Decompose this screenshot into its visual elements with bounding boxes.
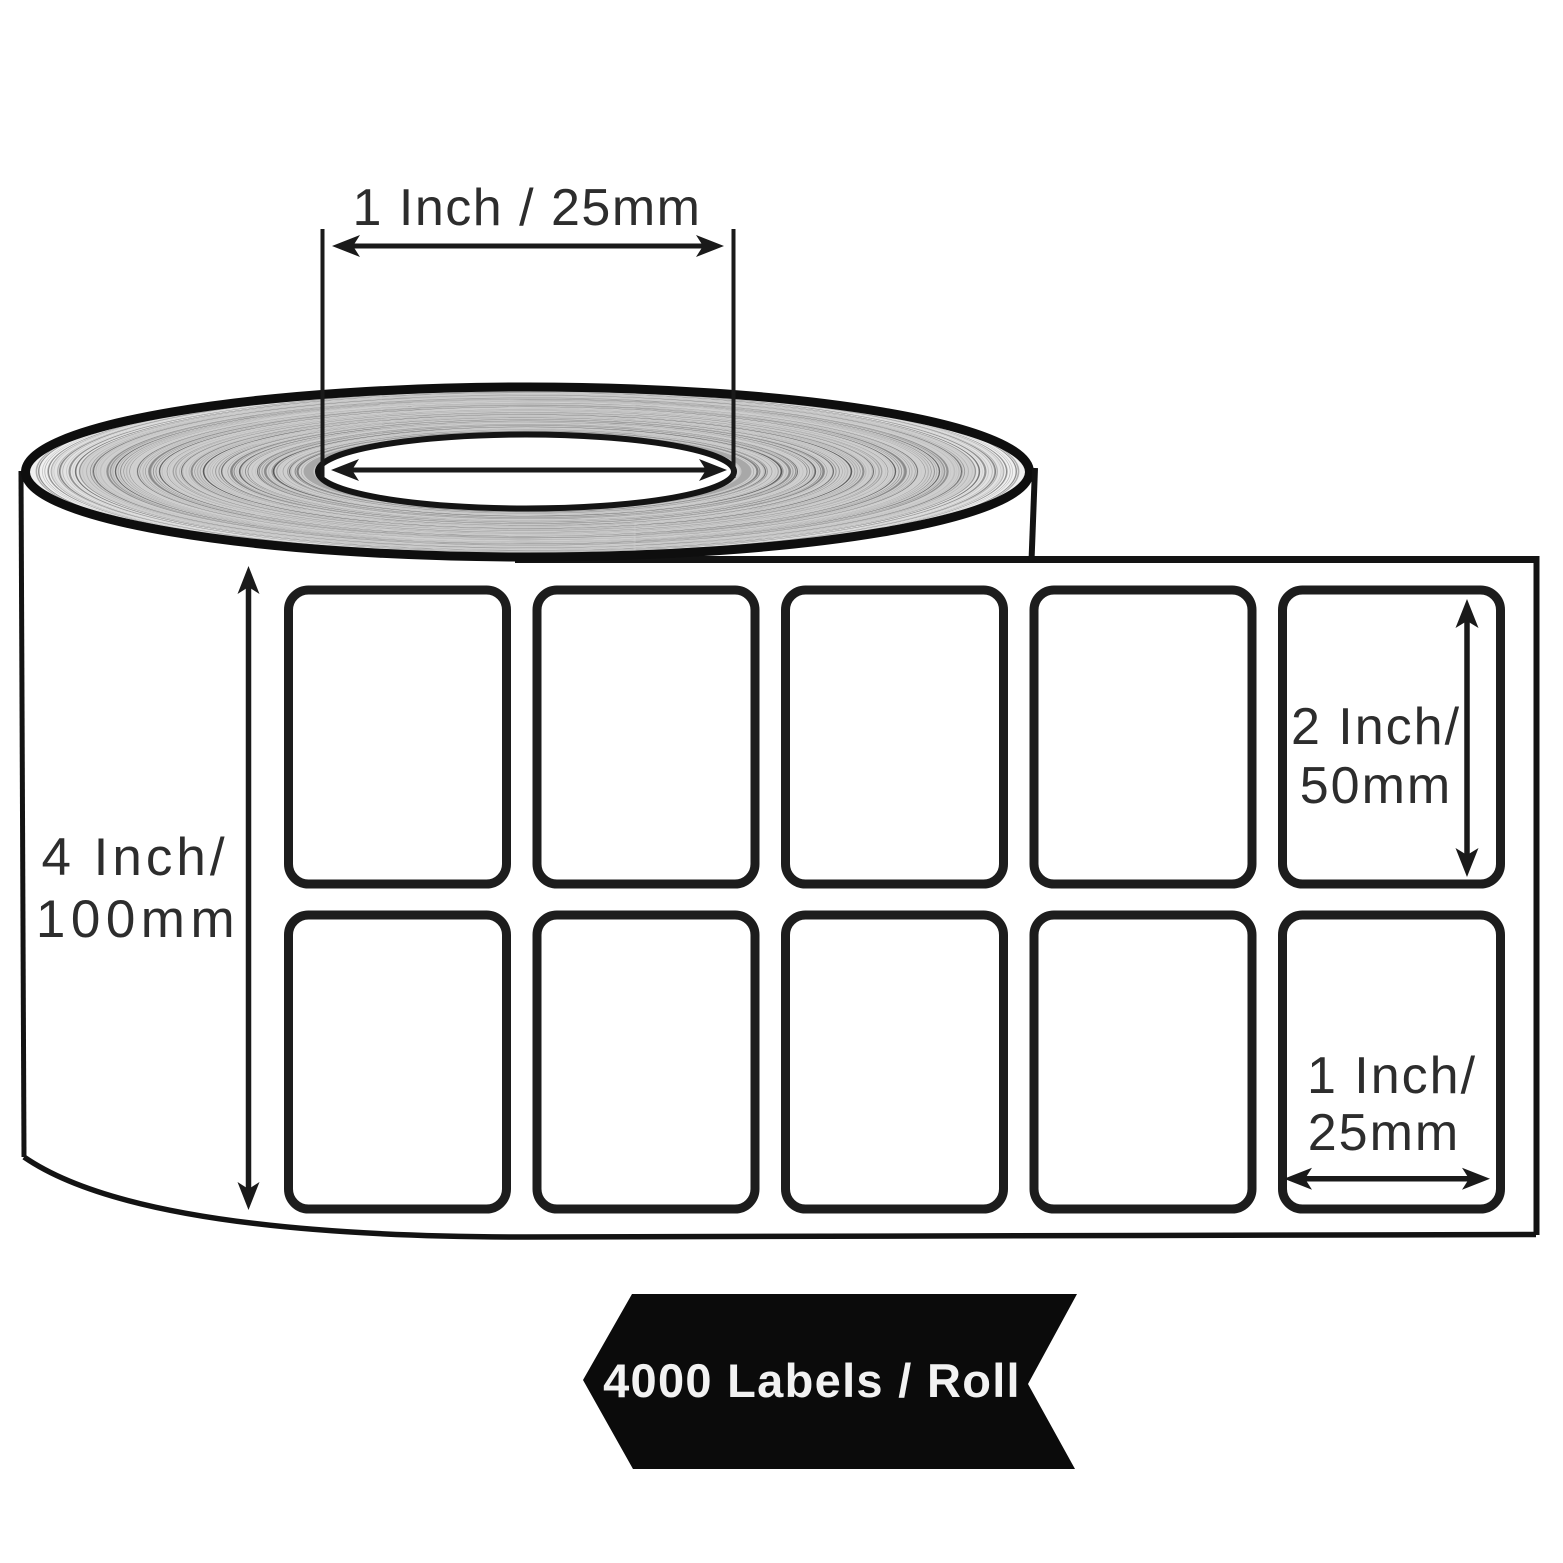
- svg-text:1 Inch / 25mm: 1 Inch / 25mm: [353, 179, 702, 237]
- svg-text:1 Inch/: 1 Inch/: [1307, 1047, 1477, 1105]
- svg-text:50mm: 50mm: [1300, 757, 1452, 815]
- svg-text:25mm: 25mm: [1308, 1104, 1460, 1162]
- svg-text:2 Inch/: 2 Inch/: [1291, 698, 1461, 756]
- svg-text:100mm: 100mm: [36, 890, 240, 949]
- svg-text:4000 Labels / Roll: 4000 Labels / Roll: [603, 1354, 1021, 1407]
- svg-text:4 Inch/: 4 Inch/: [41, 828, 228, 887]
